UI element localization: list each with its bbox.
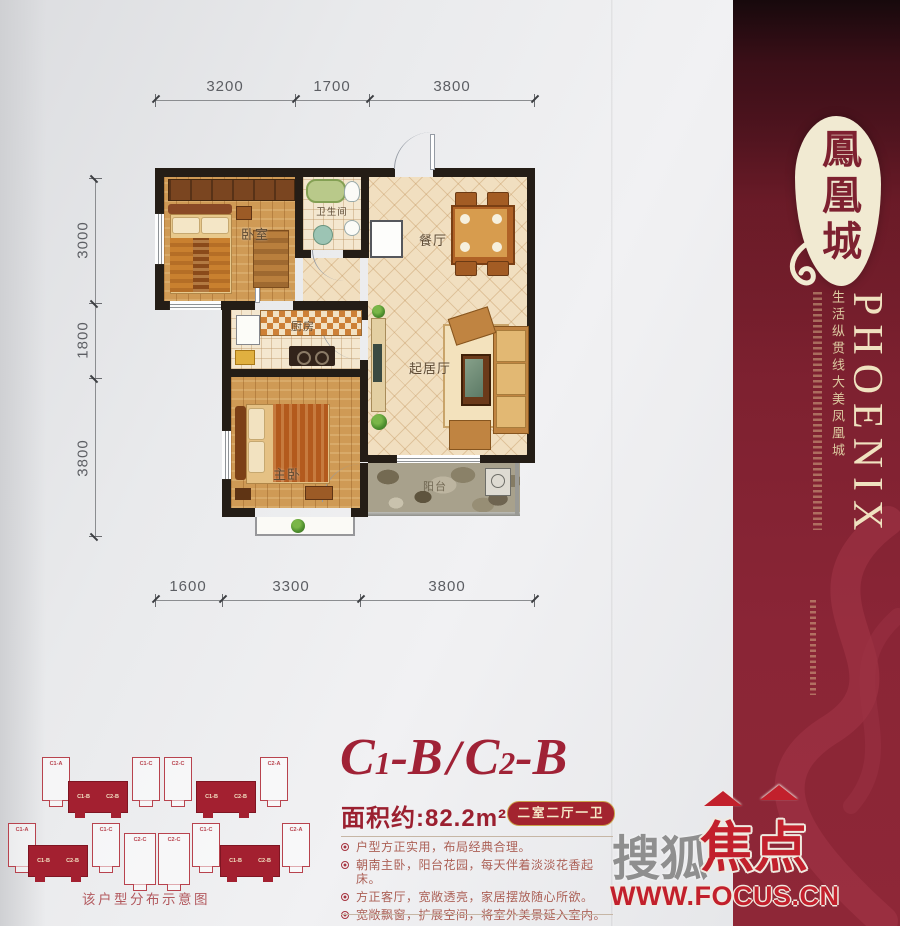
- layout-badge: 二室二厅一卫: [507, 801, 615, 826]
- master-headboard: [235, 406, 246, 480]
- dim-top-2: 1700: [313, 78, 350, 95]
- seal-tail-decoration: [781, 236, 821, 296]
- feature-item: 朝南主卧，阳台花园，每天伴着淡淡花香起床。: [341, 859, 616, 886]
- tv: [373, 344, 382, 382]
- stove-burner: [297, 351, 311, 365]
- place-setting: [492, 242, 502, 252]
- dimension-line-top: 3200 1700 3800: [155, 100, 535, 101]
- entry-door-swing: [394, 132, 432, 169]
- room-label-kitchen: 厨房: [281, 318, 325, 334]
- site-unit-outline: C2-A: [260, 757, 288, 801]
- kitchen-mat: [235, 350, 255, 365]
- master-pillow: [248, 441, 265, 473]
- dim-top-3: 3800: [433, 78, 470, 95]
- bed-pillow: [201, 217, 229, 234]
- sofa-cushion: [496, 330, 526, 362]
- unit-title-part: -B: [391, 729, 443, 786]
- unit-title-part: -B: [515, 729, 567, 786]
- room-label-bedroom: 卧室: [233, 224, 277, 243]
- balcony-rail: [368, 512, 520, 516]
- toilet: [344, 181, 360, 202]
- dim-bottom-1: 1600: [169, 578, 206, 595]
- site-unit-outline: C2-C: [124, 833, 156, 885]
- master-bench: [305, 486, 333, 500]
- fine-print-decoration: [813, 292, 822, 530]
- bay-window-plant: [291, 519, 305, 533]
- bed-headboard: [168, 204, 232, 214]
- master-west-window: [222, 430, 231, 480]
- feature-item: 户型方正实用，布局经典合理。: [341, 841, 616, 855]
- site-unit-highlighted: C1-BC2-B: [68, 781, 128, 813]
- room-label-dining: 餐厅: [411, 230, 455, 249]
- site-unit-outline: C2-C: [164, 757, 192, 801]
- feature-item: 宽敞飘窗，扩展空间，将室外美景延入室内。: [341, 909, 616, 923]
- house-roof-icon: [760, 785, 798, 800]
- dim-top-1: 3200: [206, 78, 243, 95]
- feature-text: 朝南主卧，阳台花园，每天伴着淡淡花香起床。: [356, 859, 616, 886]
- dim-bottom-3: 3800: [428, 578, 465, 595]
- bedroom-wardrobe: [168, 179, 295, 201]
- bedroom-south-window: [169, 301, 223, 310]
- unit-title: C1-B/C2-B: [340, 728, 630, 787]
- master-pillow: [248, 408, 265, 440]
- site-unit-highlighted: C1-BC2-B: [28, 845, 88, 877]
- jiaodian-wordmark: 焦点: [700, 803, 808, 882]
- site-unit-highlighted: C1-BC2-B: [196, 781, 256, 813]
- fridge: [236, 315, 260, 345]
- dim-left-1: 3000: [75, 221, 92, 258]
- dim-left-3: 3800: [75, 439, 92, 476]
- bay-window: [255, 517, 355, 536]
- room-label-bathroom: 卫生间: [303, 204, 361, 218]
- site-unit-outline: C1-A: [42, 757, 70, 801]
- living-plant: [371, 414, 387, 430]
- site-plan-caption: 该户型分布示意图: [82, 888, 210, 908]
- living-south-window: [396, 455, 482, 463]
- divider: [341, 836, 613, 837]
- slogan-2: 大美凤凰城: [830, 375, 845, 460]
- divider: [341, 914, 613, 915]
- sohu-wordmark: 搜狐: [612, 819, 708, 889]
- bedroom-west-window: [155, 213, 164, 265]
- fine-print-decoration: [810, 600, 816, 695]
- site-unit-outline: C1-C: [92, 823, 120, 867]
- hall-plant: [372, 305, 385, 318]
- dining-chair: [455, 261, 477, 276]
- focus-url: WWW.FOCUS.CN: [610, 881, 839, 912]
- site-unit-outline: C1-C: [192, 823, 220, 867]
- brand-slogans: 生活纵贯线大美凤凰城: [828, 290, 847, 620]
- room-label-master: 主卧: [267, 464, 307, 483]
- focus-watermark-logo: 搜狐 焦点 WWW.FOCUS.CN: [608, 793, 838, 918]
- coffee-table-glass: [465, 359, 483, 397]
- slogan-1: 生活纵贯线: [830, 290, 845, 375]
- brand-sidebar: 鳳凰城 PHOENIX 生活纵贯线大美凤凰城: [733, 0, 900, 926]
- washbasin: [344, 220, 360, 236]
- floor-plan: 卧室 卫生间 餐厅 厨房 起居厅 主卧 阳台: [155, 168, 535, 544]
- dimension-line-bottom: 1600 3300 3800: [155, 600, 535, 601]
- stove-burner: [315, 351, 329, 365]
- feature-item: 方正客厅，宽敞透亮，家居摆放随心所欲。: [341, 891, 616, 905]
- bullet-icon: [341, 843, 349, 851]
- unit-title-part: /: [443, 729, 465, 785]
- site-unit-outline: C1-C: [132, 757, 160, 801]
- site-plan-diagram: C1-A C1-BC2-B C1-C C2-C C1-BC2-B C2-A C1…: [20, 745, 320, 920]
- bed-pillow: [172, 217, 200, 234]
- site-unit-outline: C2-C: [158, 833, 190, 885]
- site-unit-outline: C2-A: [282, 823, 310, 867]
- armchair: [449, 420, 491, 450]
- sofa-cushion: [496, 363, 526, 395]
- bath-stool: [313, 225, 333, 245]
- room-label-living: 起居厅: [399, 358, 461, 377]
- bullet-icon: [341, 893, 349, 901]
- washing-machine-door: [491, 474, 505, 488]
- site-unit-highlighted: C1-BC2-B: [220, 845, 280, 877]
- feature-text: 宽敞飘窗，扩展空间，将室外美景延入室内。: [356, 909, 606, 923]
- nightstand: [236, 206, 252, 220]
- feature-text: 户型方正实用，布局经典合理。: [356, 841, 531, 855]
- master-dresser: [235, 488, 251, 500]
- area-label: 面积约:82.2m²: [341, 798, 507, 833]
- bullet-icon: [341, 861, 349, 869]
- bed-runner: [193, 238, 209, 292]
- bathtub: [306, 179, 346, 203]
- dimension-line-left: 3000 1800 3800: [95, 178, 96, 537]
- brochure-page: 3200 1700 3800 3000 1800 3800 1600 3300 …: [0, 0, 900, 926]
- unit-title-part: C: [340, 729, 375, 786]
- sofa-cushion: [496, 396, 526, 428]
- room-label-balcony: 阳台: [413, 478, 457, 494]
- unit-title-part: C: [465, 729, 500, 786]
- balcony-rail-right: [515, 463, 519, 515]
- dim-left-2: 1800: [75, 321, 92, 358]
- dining-chair: [487, 261, 509, 276]
- feature-text: 方正客厅，宽敞透亮，家居摆放随心所欲。: [356, 891, 594, 905]
- dim-bottom-2: 3300: [272, 578, 309, 595]
- place-setting: [460, 242, 470, 252]
- brand-name-english: PHOENIX: [843, 292, 891, 539]
- place-setting: [460, 214, 470, 224]
- paper-fold-crease: [611, 0, 614, 926]
- utility-box: [370, 220, 403, 258]
- place-setting: [492, 214, 502, 224]
- unit-title-part: 1: [375, 745, 391, 781]
- unit-title-part: 2: [499, 745, 515, 781]
